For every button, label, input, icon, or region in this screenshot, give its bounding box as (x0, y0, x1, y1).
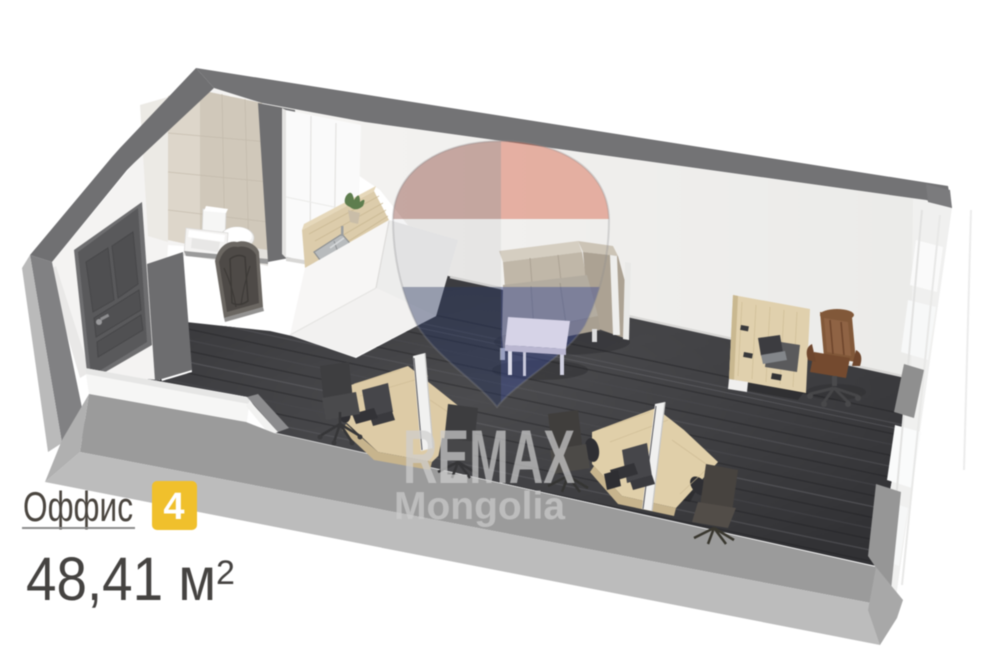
svg-text:4: 4 (163, 486, 184, 528)
svg-text:Оффис: Оффис (23, 483, 133, 530)
svg-text:48,41 м: 48,41 м (26, 545, 216, 613)
svg-text:2: 2 (216, 554, 235, 592)
svg-text:Mongolia: Mongolia (394, 485, 565, 528)
